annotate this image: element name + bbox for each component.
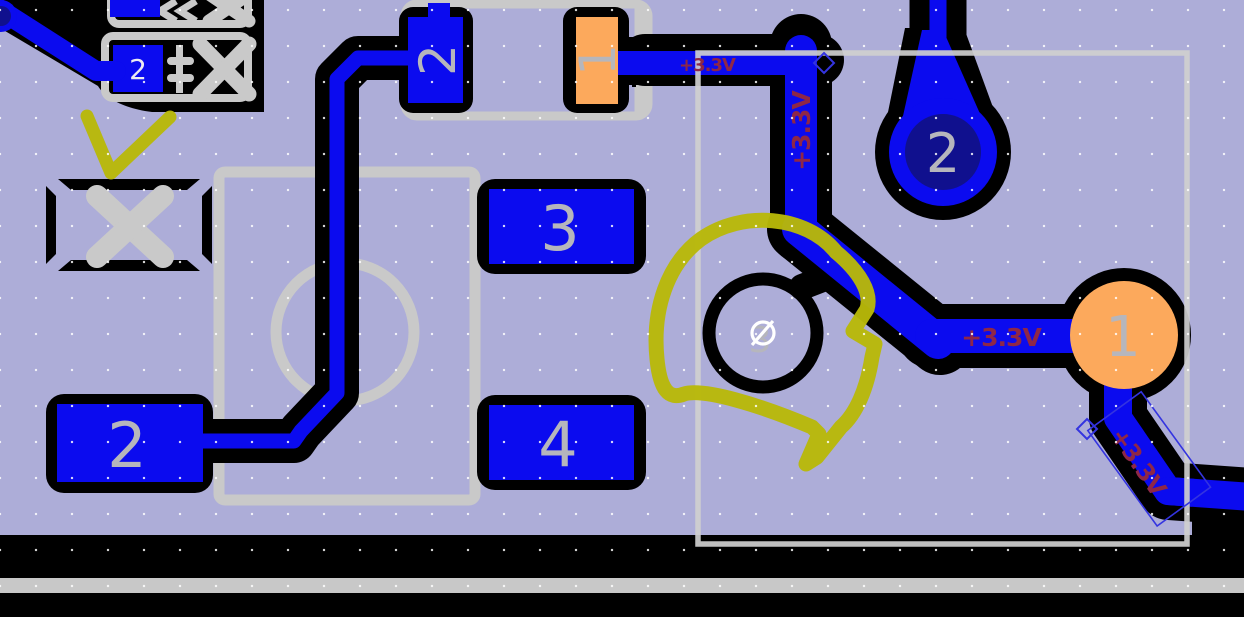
pcb-editor-canvas: 2 [0,0,1244,617]
edge-stripe [0,578,1244,593]
frame-bar-right [202,186,212,264]
net-label-top[interactable]: +3.3V [679,55,736,76]
pad-number: 2 [107,409,146,482]
annotation-checkmark[interactable] [87,116,170,173]
dnp-x-mark [97,196,163,257]
pad-number: 3 [540,192,579,265]
pad-number: 2 [409,44,467,76]
capacitor-pads[interactable]: 2 1 [408,3,627,104]
frame-bar-left [46,186,56,264]
net-label-vertical[interactable]: +3.3V [787,90,816,171]
pcb-layer-view: 2 [0,0,1244,617]
pad-number: 1 [1105,305,1141,370]
pad-top[interactable] [110,0,160,17]
cap-pad-2-stub [428,3,450,19]
pad-number: 2 [129,53,147,86]
pad-number: 1 [569,44,627,76]
frame-bar-bottom [58,260,200,271]
round-orange-pad[interactable]: 1 [1070,281,1178,389]
center-hole[interactable]: 3 [749,320,774,361]
trace-bottom-right-exit[interactable] [1168,491,1244,497]
frame-bar-top [58,179,200,190]
net-label-left-of-pad1[interactable]: +3.3V [961,323,1042,352]
pad-number: 2 [926,122,960,185]
pad-number: 4 [538,408,577,481]
